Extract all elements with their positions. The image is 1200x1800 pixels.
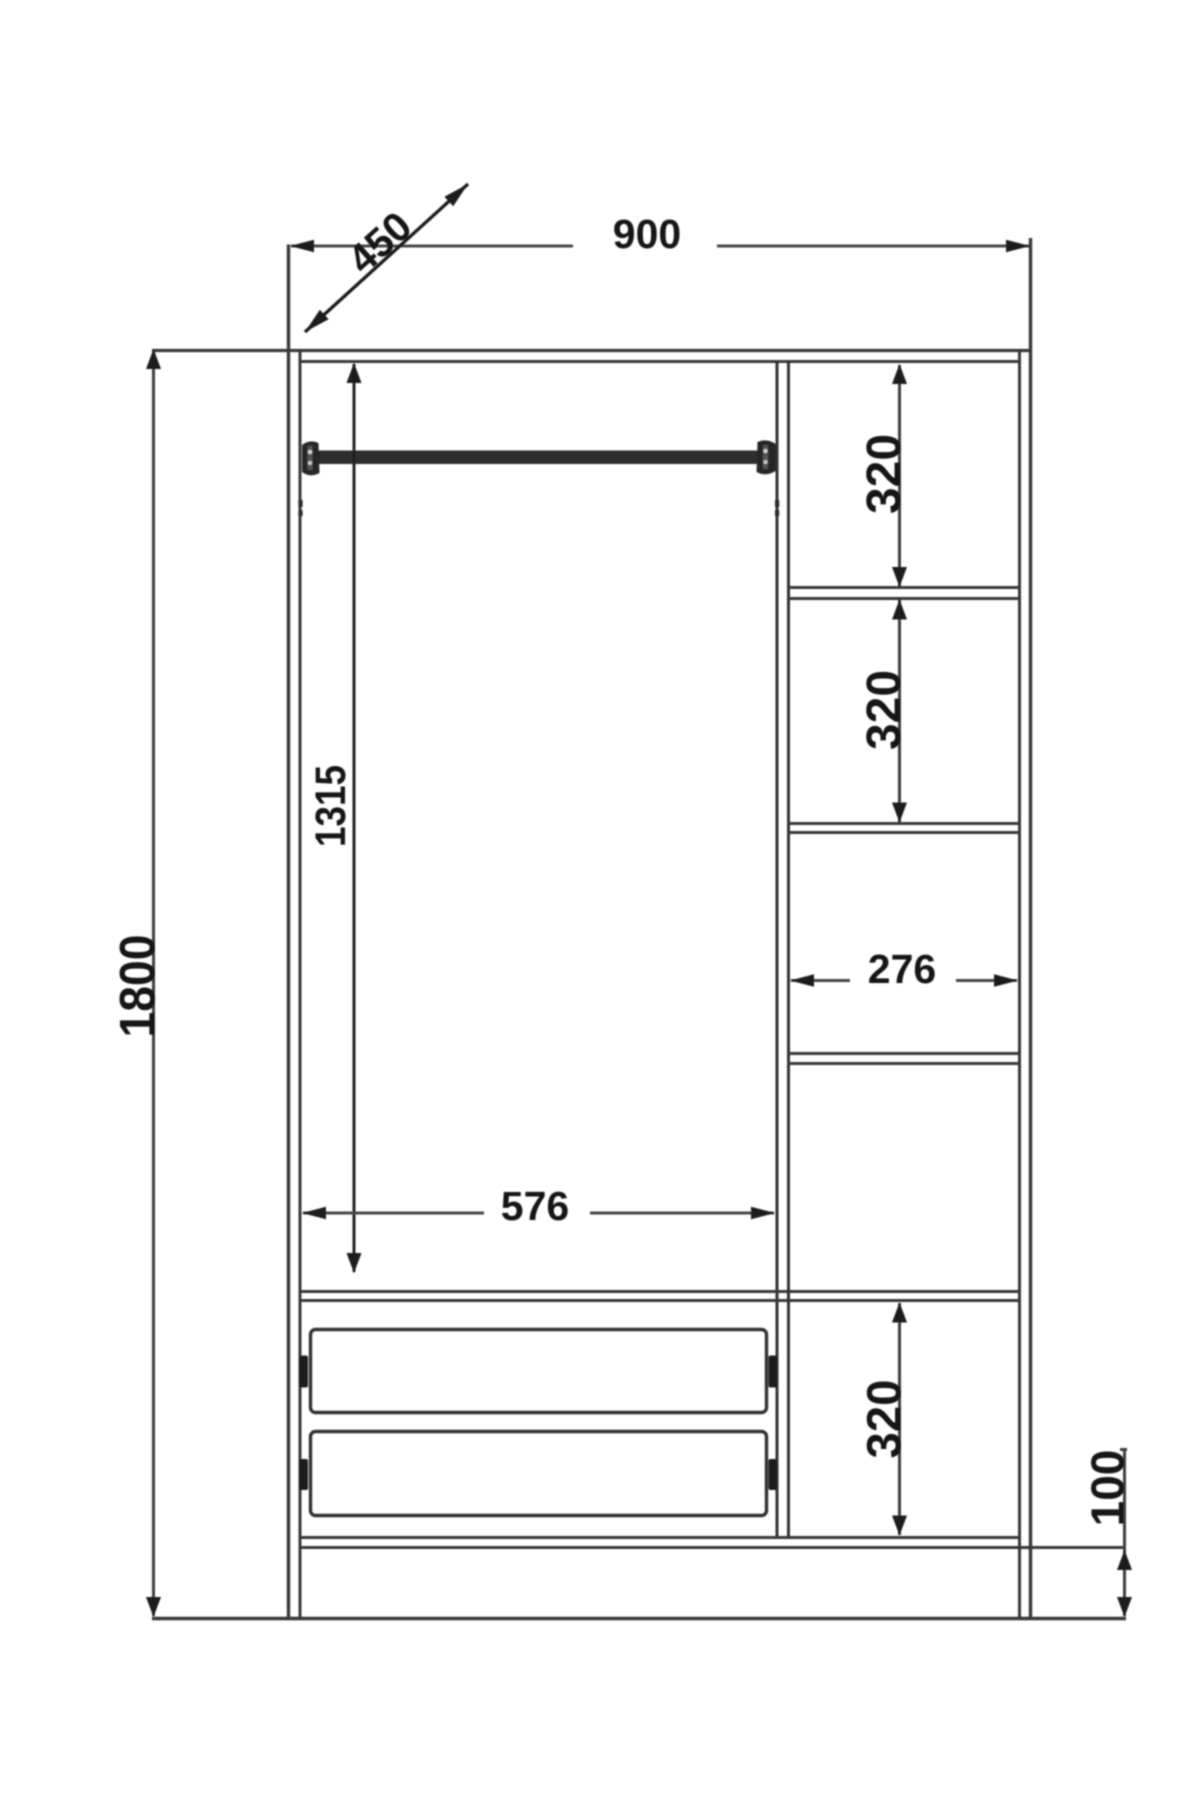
svg-text:1800: 1800	[110, 935, 166, 1038]
svg-text:576: 576	[501, 1183, 569, 1229]
svg-text:320: 320	[858, 670, 911, 750]
svg-text:1315: 1315	[307, 765, 355, 847]
svg-text:320: 320	[859, 1380, 912, 1459]
svg-text:900: 900	[613, 211, 681, 257]
svg-text:100: 100	[1082, 1450, 1134, 1527]
svg-text:320: 320	[858, 434, 911, 514]
svg-text:276: 276	[868, 946, 936, 992]
